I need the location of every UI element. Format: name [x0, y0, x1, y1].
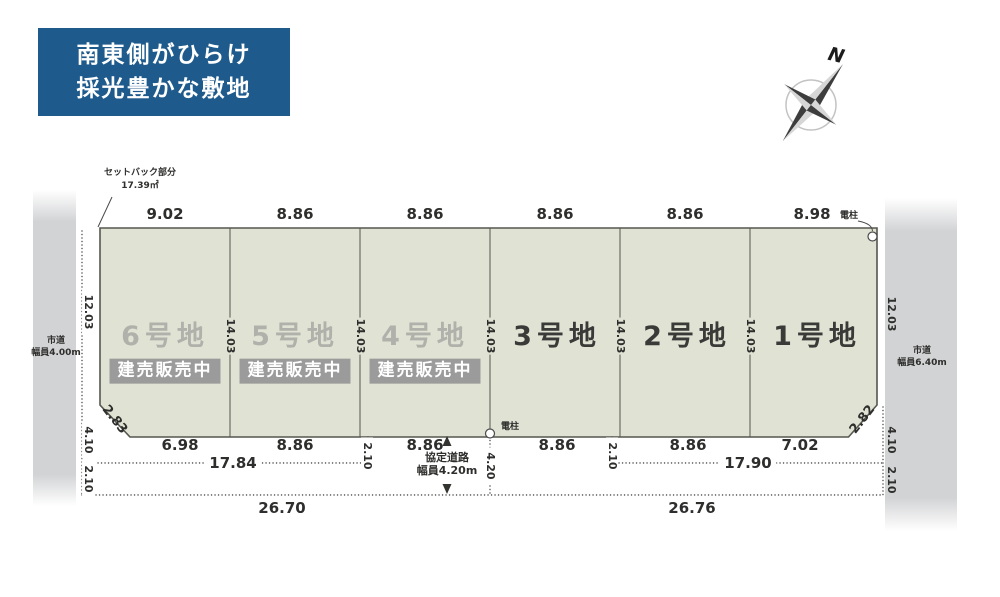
dim-top-plot1: 8.98: [793, 206, 830, 223]
dim-bottom-plot3: 8.86: [538, 437, 575, 454]
dim-offset-center: 4.20: [484, 447, 496, 484]
plot-4-name: 4号地: [381, 322, 469, 352]
dim-span-left-inner: 17.84: [204, 455, 261, 472]
dim-top-plot2: 8.86: [666, 206, 703, 223]
plot-4-status-badge: 建売販売中: [370, 359, 481, 384]
dim-bottom-plot6: 6.98: [161, 437, 198, 454]
dim-top-plot5: 8.86: [276, 206, 313, 223]
plot-5-name: 5号地: [251, 322, 339, 352]
road-right-name: 市道: [913, 347, 931, 357]
setback-title: セットバック部分: [104, 169, 176, 179]
plot-1-name: 1号地: [773, 322, 861, 352]
utility-pole-bottom-label: 電柱: [501, 423, 519, 433]
dim-depth-2: 14.03: [352, 318, 368, 355]
utility-pole-top-icon: [868, 232, 877, 241]
plot-2-name: 2号地: [643, 322, 731, 352]
utility-pole-top-label: 電柱: [840, 212, 858, 222]
dim-depth-5: 14.03: [742, 318, 758, 355]
dim-span-left-total: 26.70: [258, 500, 305, 517]
dim-bottom-plot5: 8.86: [276, 437, 313, 454]
dim-span-right-total: 26.76: [668, 500, 715, 517]
road-left-width: 幅員4.00m: [31, 349, 81, 359]
dim-offset-left: 2.10: [361, 437, 373, 474]
dim-depth-1: 14.03: [222, 318, 238, 355]
dim-left-2-10: 2.10: [82, 460, 94, 497]
setback-leader-line: [98, 197, 112, 227]
site-plan-drawing: [0, 0, 1000, 597]
dim-bottom-plot1: 7.02: [781, 437, 818, 454]
dim-span-right-inner: 17.90: [719, 455, 776, 472]
utility-pole-bottom-icon: [486, 429, 495, 438]
dim-top-plot6: 9.02: [146, 206, 183, 223]
dim-left-12-03: 12.03: [82, 290, 94, 335]
dim-top-plot3: 8.86: [536, 206, 573, 223]
agreement-road-name: 協定道路: [425, 452, 469, 464]
site-plan-page: { "header": { "line1": "南東側がひらけ", "line2…: [0, 0, 1000, 597]
plot-6-status-badge: 建売販売中: [110, 359, 221, 384]
plot-5-status-badge: 建売販売中: [240, 359, 351, 384]
dim-right-2-10: 2.10: [885, 466, 897, 493]
road-right-width: 幅員6.40m: [897, 359, 947, 369]
agreement-road-width: 幅員4.20m: [417, 465, 478, 477]
dim-bottom-plot2: 8.86: [669, 437, 706, 454]
dim-depth-3: 14.03: [482, 318, 498, 355]
plot-6-name: 6号地: [121, 322, 209, 352]
dim-right-12-03: 12.03: [885, 297, 897, 332]
dim-depth-4: 14.03: [612, 318, 628, 355]
dim-left-4-10: 4.10: [82, 421, 94, 458]
dim-top-plot4: 8.86: [406, 206, 443, 223]
road-left-name: 市道: [47, 337, 65, 347]
setback-area: 17.39㎡: [121, 182, 158, 192]
dim-right-4-10: 4.10: [885, 426, 897, 453]
plot-3-name: 3号地: [513, 322, 601, 352]
dim-offset-right: 2.10: [606, 437, 618, 474]
